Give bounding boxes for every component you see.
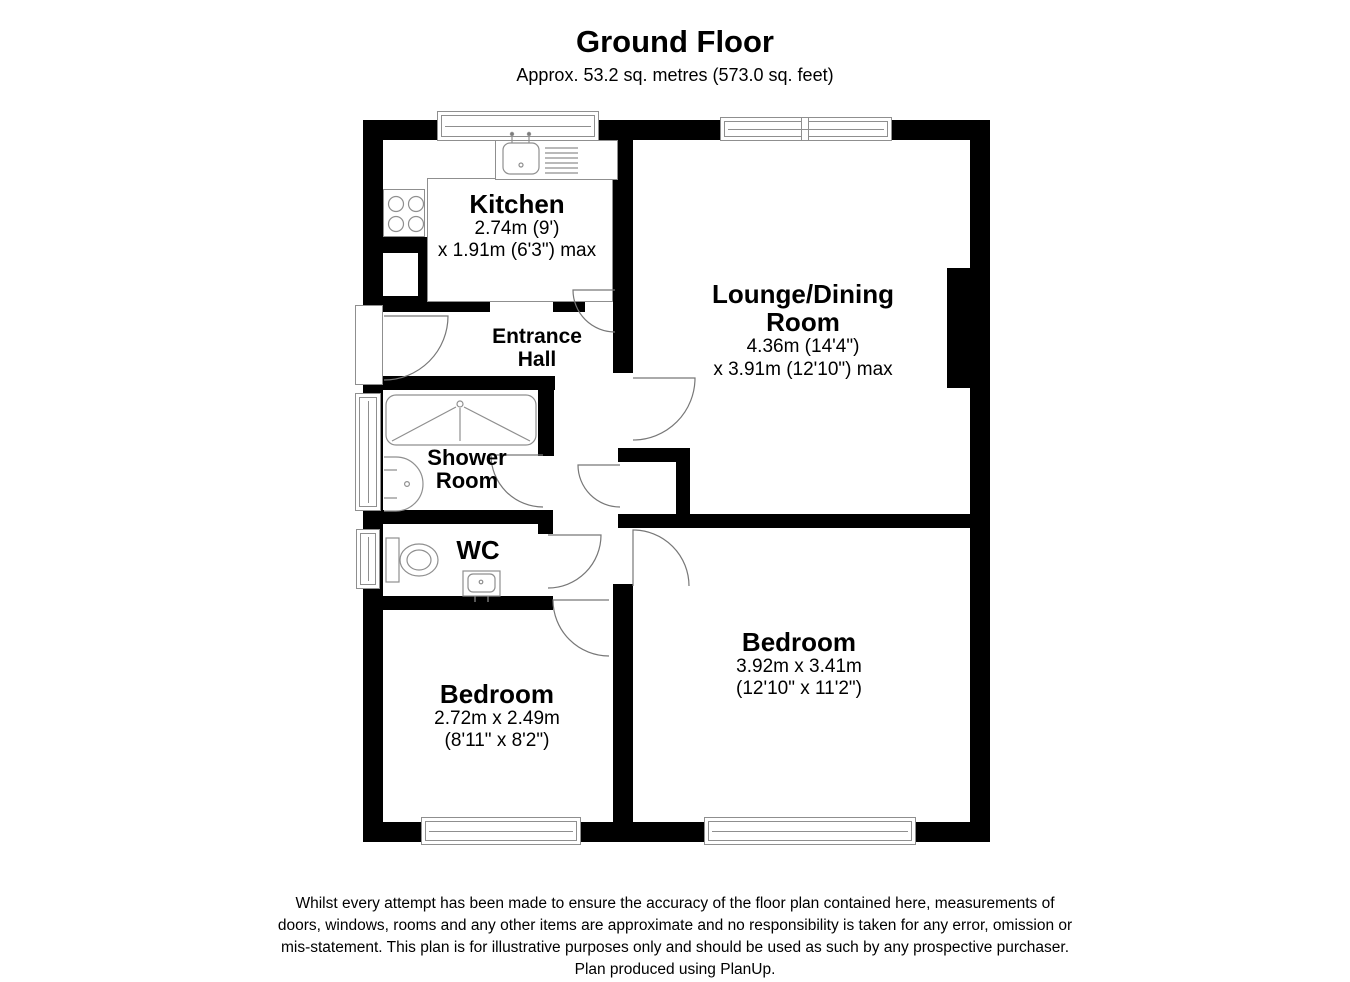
wall-bedroom-divider	[613, 584, 633, 842]
wc-basin-icon	[463, 571, 500, 596]
room-label-lounge: Lounge/Dining Room 4.36m (14'4") x 3.91m…	[712, 280, 894, 381]
disclaimer-line-4: Plan produced using PlanUp.	[278, 959, 1072, 981]
kitchen-dim2: x 1.91m (6'3") max	[438, 240, 596, 262]
wall-shower-right	[538, 390, 554, 456]
page-title: Ground Floor	[516, 26, 833, 57]
room-label-kitchen: Kitchen 2.74m (9') x 1.91m (6'3") max	[438, 190, 596, 263]
wc-door-icon	[548, 535, 601, 588]
room-label-bedroom-large: Bedroom 3.92m x 3.41m (12'10" x 11'2")	[736, 628, 862, 701]
floorplan-page: { "header": { "title": "Ground Floor", "…	[0, 0, 1350, 982]
lounge-name-line1: Lounge/Dining	[712, 280, 894, 308]
room-label-entrance-hall: Entrance Hall	[492, 325, 582, 371]
bedroom-large-dim1: 3.92m x 3.41m	[736, 656, 862, 678]
bedroom-small-dim1: 2.72m x 2.49m	[434, 708, 560, 730]
shower-tray-icon	[386, 395, 536, 445]
shower-head-icon	[457, 401, 463, 407]
bedroom-small-dim2: (8'11" x 8'2")	[434, 730, 560, 752]
kitchen-dim1: 2.74m (9')	[438, 218, 596, 240]
shower-name-line1: Shower	[427, 446, 506, 469]
window-lounge	[720, 117, 892, 141]
lounge-door-icon	[633, 378, 695, 440]
wc-name: WC	[456, 536, 499, 564]
window-shower-room	[355, 393, 381, 511]
front-door-recess	[355, 305, 383, 385]
disclaimer-line-2: doors, windows, rooms and any other item…	[278, 915, 1072, 937]
toilet-cistern-icon	[386, 538, 399, 582]
disclaimer-line-1: Whilst every attempt has been made to en…	[278, 893, 1072, 915]
lounge-dim2: x 3.91m (12'10") max	[712, 359, 894, 381]
window-bedroom-small	[421, 817, 581, 845]
wall-lounge-bedroom	[618, 514, 970, 528]
wc-basin-drain-icon	[479, 580, 483, 584]
front-door-icon	[384, 316, 448, 380]
bedroom-large-dim2: (12'10" x 11'2")	[736, 678, 862, 700]
wall-right	[970, 120, 990, 842]
hall-name-line2: Hall	[492, 348, 582, 371]
bedroom-large-door-icon	[633, 530, 689, 586]
lounge-name-line2: Room	[712, 308, 894, 336]
wall-wc-right-stub	[538, 510, 553, 534]
plan-header: Ground Floor Approx. 53.2 sq. metres (57…	[516, 26, 833, 84]
shower-name-line2: Room	[427, 469, 506, 492]
kitchen-hob-counter	[383, 189, 425, 237]
chimney-breast	[947, 268, 972, 388]
window-wc	[356, 529, 380, 589]
toilet-bowl-icon	[407, 550, 431, 570]
room-label-shower-room: Shower Room	[427, 446, 506, 492]
wall-shower-top	[363, 376, 555, 390]
page-subtitle: Approx. 53.2 sq. metres (573.0 sq. feet)	[516, 66, 833, 84]
wall-shower-wc	[363, 510, 553, 524]
wall-wc-bottom	[363, 596, 553, 610]
bedroom-small-door-icon	[553, 600, 609, 656]
bedroom-large-name: Bedroom	[736, 628, 862, 656]
shower-tray-lines	[392, 407, 530, 441]
kitchen-sink-counter	[495, 140, 618, 180]
window-kitchen	[437, 111, 599, 141]
kitchen-name: Kitchen	[438, 190, 596, 218]
window-mullion	[801, 118, 809, 140]
room-label-wc: WC	[456, 536, 499, 564]
basin-drain-icon	[405, 482, 410, 487]
wc-basin-inner	[468, 574, 495, 592]
lounge-dim1: 4.36m (14'4")	[712, 336, 894, 358]
bedroom-small-name: Bedroom	[434, 680, 560, 708]
closet-door-icon	[578, 465, 620, 507]
disclaimer: Whilst every attempt has been made to en…	[278, 893, 1072, 981]
window-bedroom-large	[704, 817, 916, 845]
hall-name-line1: Entrance	[492, 325, 582, 348]
basin-taps-icon	[384, 470, 397, 498]
disclaimer-line-3: mis-statement. This plan is for illustra…	[278, 937, 1072, 959]
wash-basin-icon	[384, 457, 423, 511]
wall-below-hob	[363, 237, 433, 253]
room-label-bedroom-small: Bedroom 2.72m x 2.49m (8'11" x 8'2")	[434, 680, 560, 753]
toilet-icon	[400, 544, 438, 576]
